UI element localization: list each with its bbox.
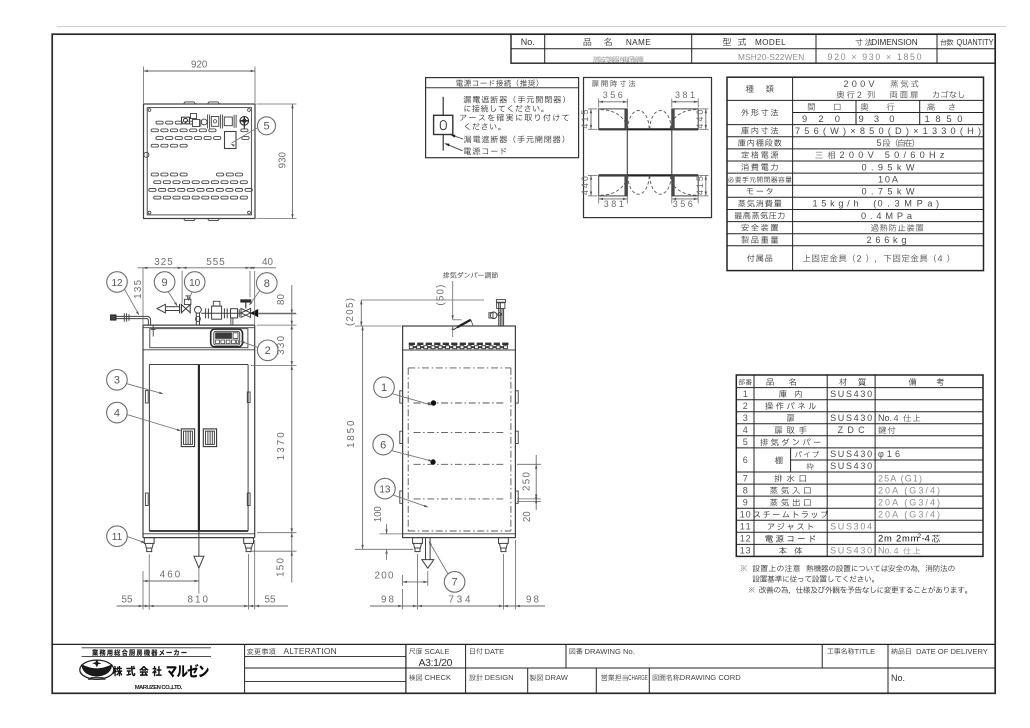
svg-text:356: 356	[603, 90, 623, 100]
svg-text:10: 10	[189, 278, 201, 289]
svg-text:DRAWING CORD: DRAWING CORD	[680, 673, 741, 682]
svg-text:MSH20-S22WEN: MSH20-S22WEN	[738, 52, 804, 62]
svg-text:734: 734	[449, 594, 472, 605]
svg-text:(205): (205)	[345, 298, 356, 326]
svg-text:415: 415	[695, 176, 705, 195]
svg-text:415: 415	[580, 110, 590, 129]
svg-text:5: 5	[263, 121, 269, 133]
svg-text:20: 20	[522, 511, 533, 522]
svg-text:ZDC: ZDC	[838, 425, 866, 435]
svg-text:CHECK: CHECK	[425, 673, 452, 682]
svg-text:4: 4	[114, 407, 120, 419]
svg-text:98: 98	[381, 594, 395, 605]
svg-text:DRAWING No.: DRAWING No.	[585, 647, 635, 656]
svg-text:555: 555	[206, 257, 225, 268]
svg-text:330: 330	[276, 335, 287, 355]
svg-text:6: 6	[743, 455, 748, 465]
svg-text:2m 2mm: 2m 2mm	[878, 533, 919, 544]
svg-text:DESIGN: DESIGN	[485, 673, 514, 682]
svg-text:3: 3	[114, 375, 120, 387]
svg-text:4: 4	[743, 425, 748, 435]
svg-text:ALTERATION: ALTERATION	[284, 646, 337, 656]
svg-text:1: 1	[381, 382, 387, 394]
svg-text:100: 100	[373, 506, 384, 523]
svg-text:No.: No.	[878, 413, 892, 423]
svg-text:25A (G1): 25A (G1)	[878, 473, 922, 483]
svg-text:250: 250	[521, 471, 532, 491]
svg-text:381: 381	[604, 199, 624, 209]
svg-text:920 × 930 × 1850: 920 × 930 × 1850	[828, 52, 922, 62]
svg-text:1370: 1370	[276, 432, 287, 461]
svg-text:756(W)×850(D)×1330(H): 756(W)×850(D)×1330(H)	[795, 126, 981, 136]
svg-text:): )	[936, 199, 939, 209]
svg-text:460: 460	[160, 570, 181, 581]
svg-text:12: 12	[111, 278, 123, 289]
svg-text:12: 12	[740, 534, 751, 544]
svg-text:20A (G3/4): 20A (G3/4)	[878, 497, 940, 507]
svg-text:20A (G3/4): 20A (G3/4)	[878, 509, 940, 519]
svg-text:920: 920	[191, 60, 208, 71]
svg-text:150: 150	[275, 557, 286, 577]
svg-text:No.: No.	[521, 37, 535, 47]
svg-text:CHARGE: CHARGE	[628, 673, 648, 682]
svg-text:55: 55	[122, 594, 133, 605]
svg-text:1: 1	[743, 389, 748, 399]
svg-text:810: 810	[187, 594, 208, 605]
svg-text:DATE OF DELIVERY: DATE OF DELIVERY	[916, 647, 988, 656]
svg-text:5: 5	[876, 138, 881, 148]
svg-text:11: 11	[740, 522, 751, 532]
svg-text:20A (G3/4): 20A (G3/4)	[878, 485, 940, 495]
svg-text:7: 7	[452, 577, 458, 589]
svg-text:6: 6	[380, 439, 386, 451]
svg-text:55: 55	[265, 594, 276, 605]
svg-text:No.: No.	[878, 546, 892, 556]
svg-text:98: 98	[526, 594, 540, 605]
svg-text:1850: 1850	[346, 420, 357, 448]
svg-text:11: 11	[112, 532, 123, 543]
svg-text:440: 440	[695, 110, 705, 129]
svg-text:MODEL: MODEL	[755, 38, 786, 47]
svg-text:200V: 200V	[844, 79, 876, 89]
svg-text:8: 8	[743, 485, 748, 495]
svg-text:356: 356	[673, 199, 693, 209]
svg-text:13: 13	[740, 546, 751, 556]
svg-text:3: 3	[743, 413, 748, 423]
svg-text:No.: No.	[891, 673, 905, 683]
svg-text:10A: 10A	[878, 174, 899, 184]
svg-text:(50): (50)	[436, 285, 447, 306]
svg-text:9: 9	[743, 497, 748, 507]
svg-text:13: 13	[379, 484, 391, 495]
svg-text:381: 381	[675, 90, 695, 100]
svg-text:9: 9	[162, 277, 168, 289]
svg-text:7: 7	[743, 473, 748, 483]
svg-text:2: 2	[265, 345, 271, 357]
svg-text:325: 325	[154, 257, 173, 268]
svg-text:TITLE: TITLE	[855, 647, 876, 656]
svg-text:SCALE: SCALE	[425, 647, 450, 656]
svg-text:(: (	[873, 199, 876, 209]
svg-text:DIMENSION: DIMENSION	[871, 38, 917, 47]
svg-text:80: 80	[276, 294, 287, 305]
svg-text:QUANTITY: QUANTITY	[957, 38, 994, 47]
svg-text:930: 930	[278, 151, 289, 168]
svg-text:NAME: NAME	[626, 38, 651, 47]
svg-text:A3:1/20: A3:1/20	[419, 657, 453, 669]
svg-text:440: 440	[580, 176, 590, 195]
svg-text:-4: -4	[922, 533, 930, 544]
svg-text:8: 8	[264, 278, 270, 290]
svg-text:200: 200	[375, 570, 395, 581]
svg-text:10: 10	[740, 509, 751, 519]
svg-text:MARUZEN CO.,LTD.: MARUZEN CO.,LTD.	[135, 685, 183, 691]
svg-text:135: 135	[133, 279, 144, 299]
svg-text:5: 5	[743, 437, 748, 447]
svg-text:DATE: DATE	[485, 647, 505, 656]
svg-text:DRAW: DRAW	[545, 673, 569, 682]
svg-text:φ16: φ16	[878, 449, 900, 459]
svg-text:2: 2	[743, 401, 748, 411]
svg-text:40: 40	[262, 257, 273, 268]
